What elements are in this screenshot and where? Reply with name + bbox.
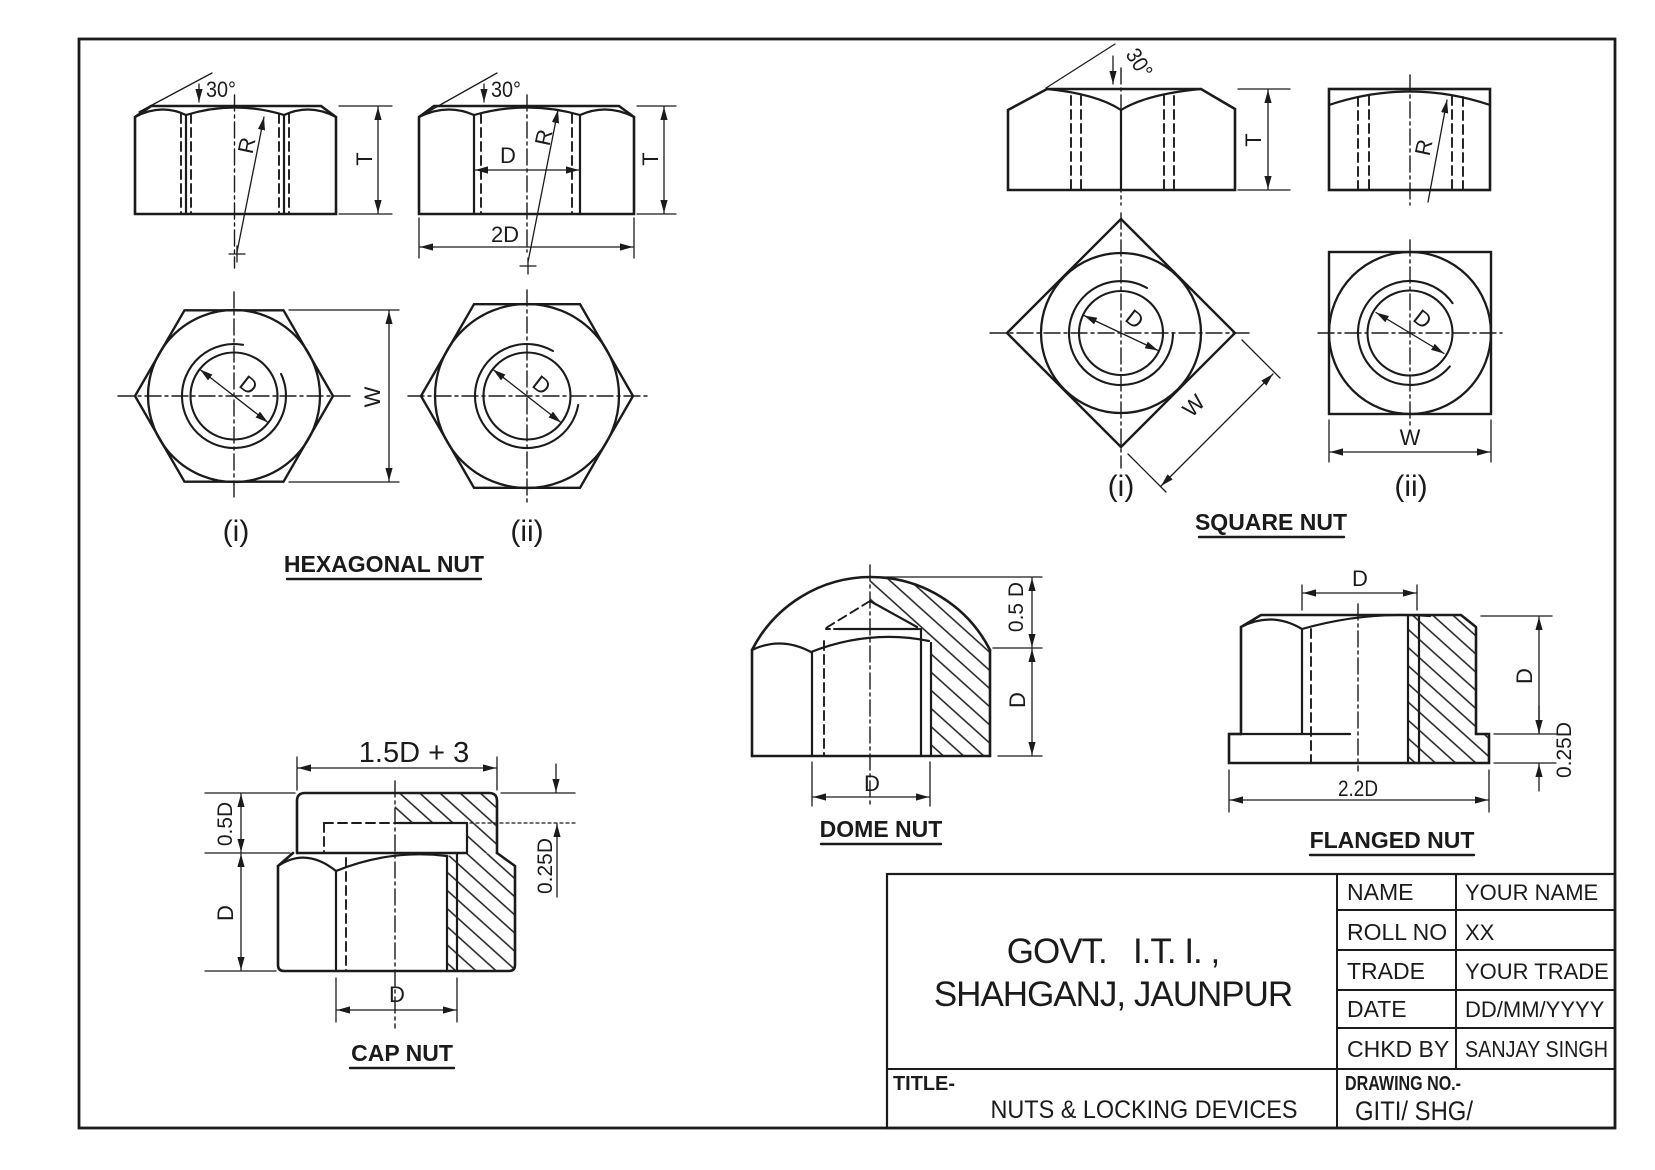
svg-text:(i): (i) xyxy=(223,515,250,548)
svg-text:(ii): (ii) xyxy=(1394,470,1427,503)
svg-text:TRADE: TRADE xyxy=(1347,958,1425,984)
svg-text:DRAWING NO.-: DRAWING NO.- xyxy=(1345,1073,1461,1095)
svg-text:SHAHGANJ, JAUNPUR: SHAHGANJ, JAUNPUR xyxy=(934,975,1292,1014)
svg-text:SANJAY SINGH: SANJAY SINGH xyxy=(1465,1036,1608,1062)
svg-text:1.5D + 3: 1.5D + 3 xyxy=(359,737,469,769)
svg-text:DOME NUT: DOME NUT xyxy=(820,816,943,842)
svg-text:SQUARE NUT: SQUARE NUT xyxy=(1195,509,1347,535)
svg-text:0.25D: 0.25D xyxy=(1553,722,1576,778)
svg-text:D: D xyxy=(500,143,516,168)
svg-text:GOVT. I.T. I. ,: GOVT. I.T. I. , xyxy=(1007,932,1219,971)
svg-text:(i): (i) xyxy=(1108,470,1135,503)
svg-text:CAP NUT: CAP NUT xyxy=(351,1040,453,1066)
svg-text:W: W xyxy=(360,386,385,407)
svg-text:30°: 30° xyxy=(491,77,521,102)
svg-text:D: D xyxy=(389,982,405,1007)
svg-text:(ii): (ii) xyxy=(510,515,543,548)
svg-text:T: T xyxy=(638,152,663,165)
svg-text:D: D xyxy=(213,905,238,921)
svg-text:W: W xyxy=(1400,425,1421,450)
svg-text:NAME: NAME xyxy=(1347,879,1413,905)
svg-text:D: D xyxy=(1005,692,1030,708)
svg-text:2D: 2D xyxy=(491,222,519,247)
svg-text:D: D xyxy=(864,771,880,796)
svg-text:0.5D: 0.5D xyxy=(214,802,237,846)
svg-text:30°: 30° xyxy=(206,77,236,102)
svg-text:D: D xyxy=(1512,668,1537,684)
svg-text:2.2D: 2.2D xyxy=(1338,776,1378,801)
svg-text:YOUR NAME: YOUR NAME xyxy=(1465,880,1598,905)
svg-text:FLANGED NUT: FLANGED NUT xyxy=(1310,827,1475,853)
svg-text:D: D xyxy=(1352,566,1368,591)
svg-text:T: T xyxy=(1241,133,1266,146)
svg-text:CHKD BY: CHKD BY xyxy=(1347,1036,1449,1062)
svg-text:ROLL NO: ROLL NO xyxy=(1347,919,1447,945)
svg-text:T: T xyxy=(352,152,377,165)
svg-text:XX: XX xyxy=(1465,920,1495,945)
svg-text:NUTS & LOCKING DEVICES: NUTS & LOCKING DEVICES xyxy=(991,1096,1298,1124)
svg-text:DATE: DATE xyxy=(1347,996,1407,1022)
svg-text:GITI/ SHG/: GITI/ SHG/ xyxy=(1355,1096,1473,1126)
svg-text:0.5 D: 0.5 D xyxy=(1005,582,1028,632)
svg-text:0.25D: 0.25D xyxy=(534,838,557,894)
svg-text:TITLE-: TITLE- xyxy=(893,1073,955,1095)
svg-text:DD/MM/YYYY: DD/MM/YYYY xyxy=(1465,997,1605,1022)
svg-text:HEXAGONAL NUT: HEXAGONAL NUT xyxy=(284,551,484,577)
svg-text:YOUR TRADE: YOUR TRADE xyxy=(1465,959,1609,984)
